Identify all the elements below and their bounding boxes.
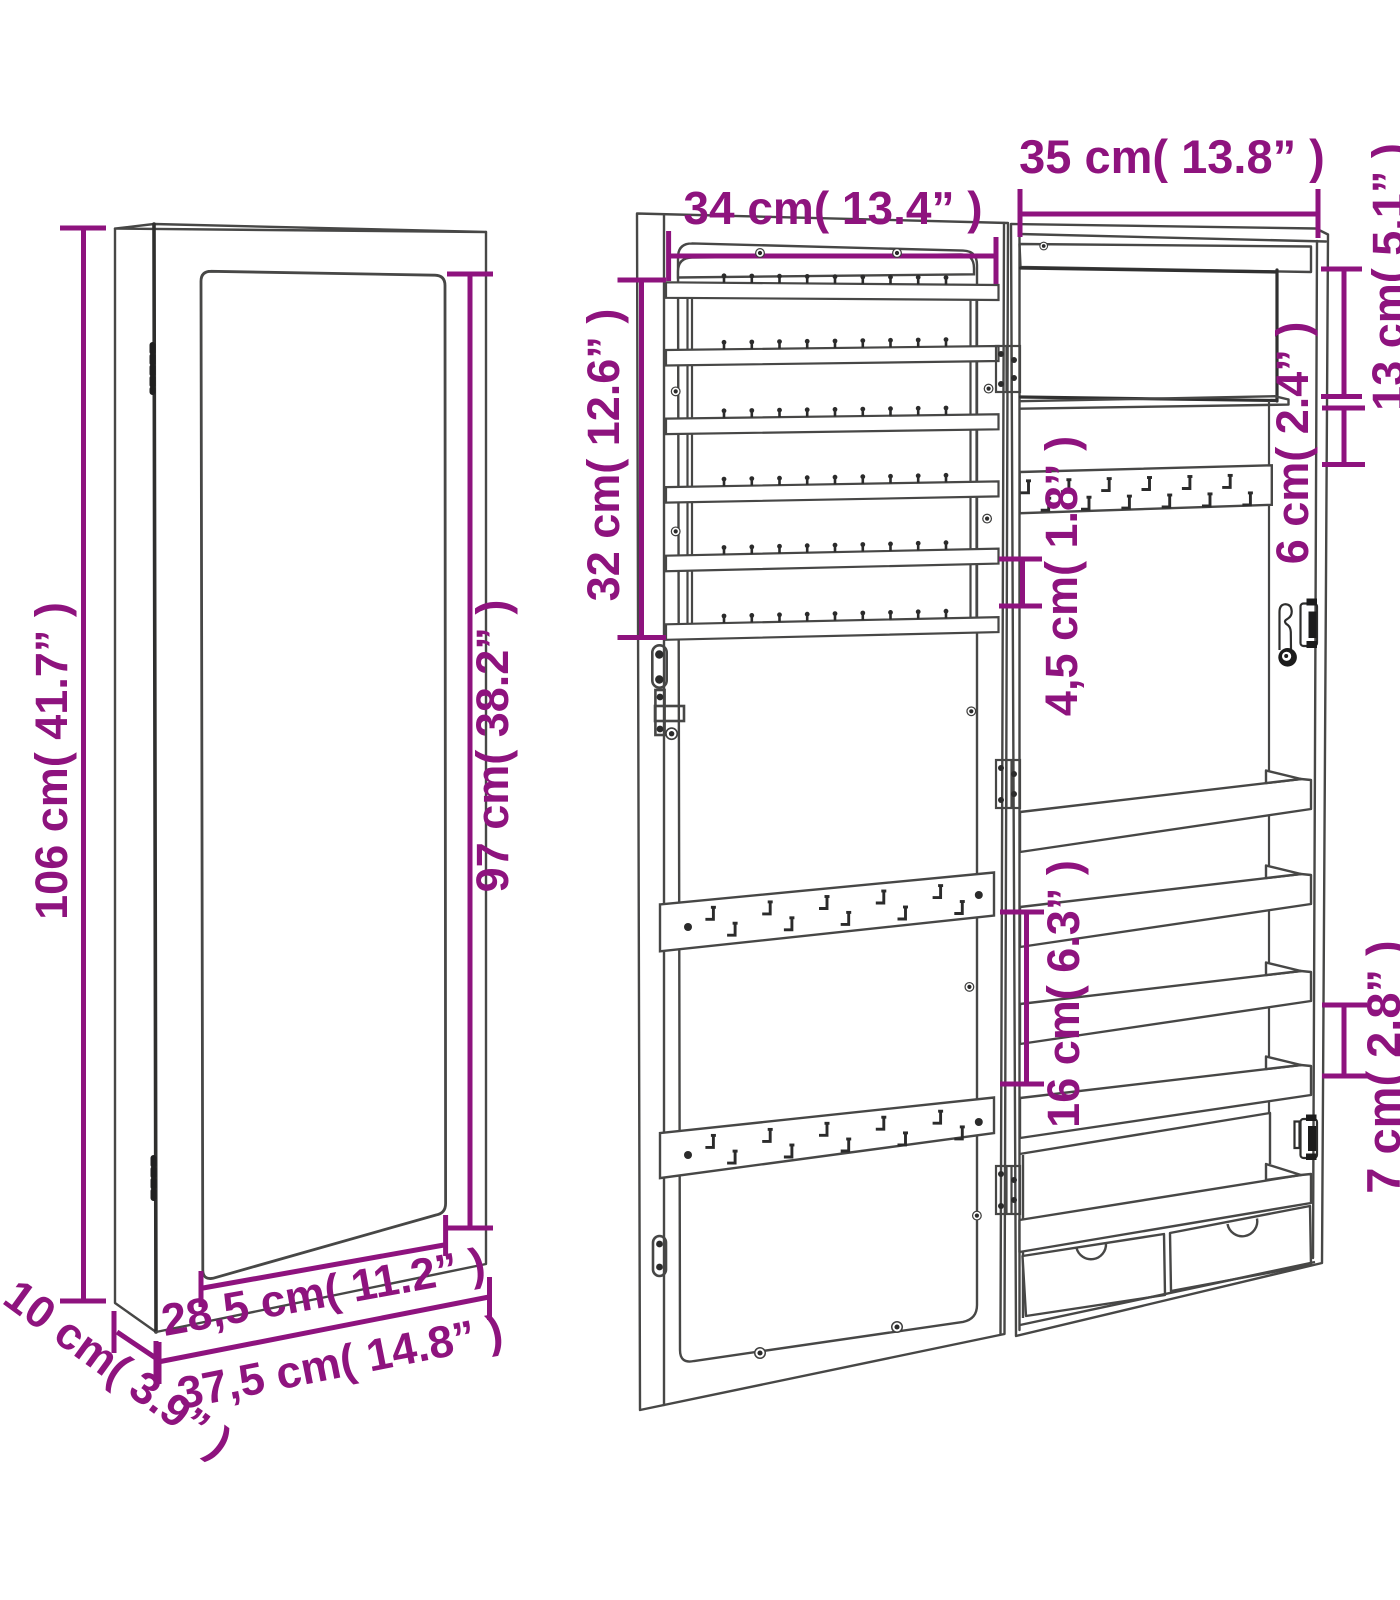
svg-text:13 cm( 5.1” ): 13 cm( 5.1” ) — [1363, 143, 1400, 411]
svg-text:34 cm( 13.4” ): 34 cm( 13.4” ) — [683, 182, 982, 234]
svg-text:7 cm( 2.8” ): 7 cm( 2.8” ) — [1357, 940, 1400, 1193]
svg-text:4,5 cm( 1.8” ): 4,5 cm( 1.8” ) — [1036, 436, 1087, 716]
svg-text:97 cm( 38.2” ): 97 cm( 38.2” ) — [467, 600, 518, 893]
svg-text:16 cm( 6.3” ): 16 cm( 6.3” ) — [1038, 860, 1089, 1128]
svg-text:35 cm( 13.8” ): 35 cm( 13.8” ) — [1019, 130, 1325, 183]
svg-text:6 cm( 2.4” ): 6 cm( 2.4” ) — [1267, 322, 1318, 565]
svg-text:32 cm( 12.6” ): 32 cm( 12.6” ) — [578, 309, 629, 602]
svg-text:106 cm( 41.7” ): 106 cm( 41.7” ) — [26, 602, 77, 920]
